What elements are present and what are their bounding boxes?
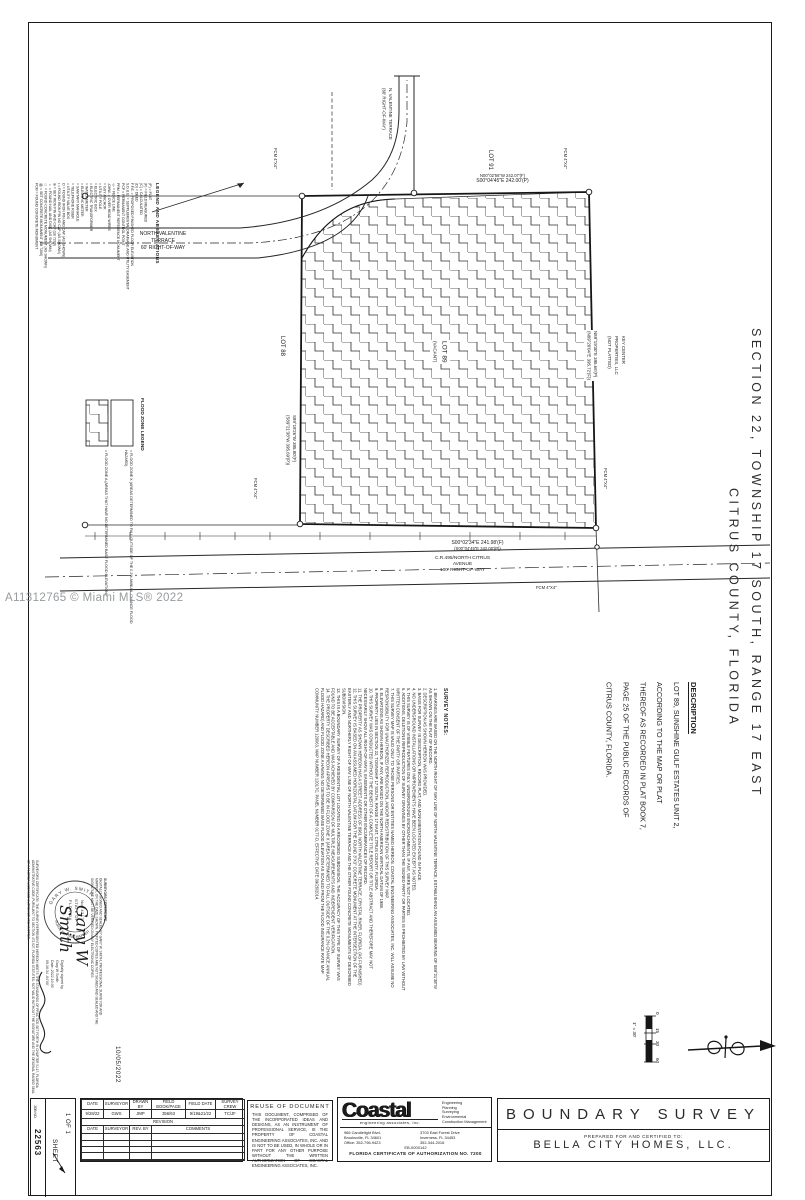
adjacent-owner-label: KEY CENTERPROPERTIES, LLC(NOT PLATTED) bbox=[606, 336, 627, 375]
reuse-of-document-box: REUSE OF DOCUMENT THIS DOCUMENT, COMPRIS… bbox=[247, 1100, 333, 1161]
list-item: = ELECTRIC BOX bbox=[93, 183, 98, 493]
certificate-heading: SURVEYORS CERTIFICATE bbox=[103, 878, 107, 1028]
cell-date: 9/28/22 bbox=[82, 1110, 104, 1119]
bearing-text: S00°04'45"E 242.00'(P) bbox=[415, 178, 590, 184]
list-item: = SANITARY MANHOLE bbox=[75, 183, 80, 493]
survey-info-table: DATE SURVEYOR DRAWN BY FIELD BOOK/PAGE F… bbox=[80, 1098, 243, 1162]
list-item: Digitally signed by bbox=[59, 960, 64, 989]
revision-header: REVISION bbox=[82, 1119, 245, 1126]
list-item: = UTILITY POLE bbox=[97, 183, 102, 493]
signature-line: Smith bbox=[56, 905, 73, 966]
scale-bar bbox=[644, 1016, 656, 1062]
sheet-arrow-icon bbox=[49, 1151, 73, 1181]
col-header-surveyor: SURVEYOR bbox=[104, 1100, 130, 1110]
list-item: ACCORDING TO THE MAP OR PLAT bbox=[650, 682, 667, 950]
section-township-title: SECTION 22, TOWNSHIP 17 SOUTH, RANGE 17 … bbox=[722, 328, 767, 888]
list-item: • = FOUND IRON PIN NO CAP (AS SHOWN) bbox=[57, 183, 62, 493]
reuse-body: THIS DOCUMENT, COMPRISED OF THE INCORPOR… bbox=[248, 1112, 332, 1168]
scale-tick-15: 15 bbox=[655, 1028, 660, 1033]
boundary-survey-box: BOUNDARY SURVEY PREPARED FOR AND CERTIFI… bbox=[497, 1098, 770, 1162]
list-item: 8. ELEVATIONS AS SHOWN HEREON, IF ANY, A… bbox=[379, 688, 384, 994]
cell-field-book: 356/63 bbox=[152, 1110, 186, 1119]
list-item: ⊕ = SET IRON PIN AND CAP (LB 7200) bbox=[52, 183, 57, 493]
list-item: □ = FOUND CONCRETE MONUMENT (AS SHOWN) bbox=[43, 183, 48, 493]
col-header-survey-crew: SURVEY CREW bbox=[216, 1100, 245, 1110]
list-item: S.D.U.E. = SUPPLEMENTAL DRAINAGE AND UTI… bbox=[125, 183, 130, 493]
corner-label-nw: FCM 4"X4" bbox=[272, 148, 277, 169]
list-item: 10. THIS SURVEY WAS CONDUCTED WITHOUT TH… bbox=[363, 688, 374, 994]
road-label-line: 100' RIGHT-OF-WAY bbox=[385, 568, 540, 574]
list-item: KEY CENTER bbox=[620, 336, 627, 375]
surveyor-signature: Gary W Smith bbox=[56, 905, 90, 966]
list-item: (P) = PLAT bbox=[147, 183, 152, 493]
lot-89-status: (VACANT) bbox=[431, 341, 438, 363]
boundary-survey-title: BOUNDARY SURVEY bbox=[506, 1106, 761, 1123]
bearing-east-line: N89°19'30"E 395.66'(P) (N89°20'04"E 395.… bbox=[584, 330, 599, 381]
list-item: 14. THE PROPERTY DESCRIBED HEREON APPEAR… bbox=[314, 688, 330, 994]
rev-row-cell bbox=[104, 1159, 130, 1160]
survey-sheet: GARY W. SMITH SURVEYOR AND MAPPER bbox=[0, 0, 805, 1200]
reuse-title: REUSE OF DOCUMENT bbox=[248, 1104, 332, 1110]
north-arrow-icon bbox=[688, 1035, 776, 1058]
legend-title: LEGEND AND ABBREVIATIONS bbox=[154, 183, 160, 493]
list-item: 9. PROPERTY LIES IN SECTION 22, TOWNSHIP… bbox=[373, 688, 378, 994]
list-item: 7. THIS SURVEY MAP IS VALID ONLY TO THOS… bbox=[384, 688, 395, 994]
list-item: = ELECTRIC TRANSFORMER bbox=[88, 183, 93, 493]
cell-field-date: 9/19&21/22 bbox=[186, 1110, 216, 1119]
coastal-logo: Coastal bbox=[342, 1100, 438, 1121]
mls-watermark: A11312765 © Miami MLS® 2022 bbox=[5, 592, 183, 604]
county-line: CITRUS COUNTY, FLORIDA bbox=[722, 328, 745, 888]
survey-notes-list: 1. BEARINGS ARE BASED ON THE NORTH RIGHT… bbox=[314, 688, 438, 994]
sheet-number-box: JOB NO. 22563 1 OF 1 SHEET bbox=[30, 1098, 76, 1196]
list-item: 1. BEARINGS ARE BASED ON THE NORTH RIGHT… bbox=[427, 688, 438, 994]
bearing-north-line: N00°02'56"W 242.07'(F) S00°04'45"E 242.0… bbox=[415, 173, 590, 185]
bearing-text: S89°18'26"W 395.80'(F) bbox=[291, 415, 298, 465]
road-label-line: (60' RIGHT-OF-WAY) bbox=[380, 88, 387, 140]
section-line: SECTION 22, TOWNSHIP 17 SOUTH, RANGE 17 … bbox=[745, 328, 768, 888]
coastal-address-inverness: 3703 East Forest DriveInverness, FL 3445… bbox=[420, 1130, 490, 1145]
list-item: 11. THE PROPERTY AS SHOWN HEREON HAS A S… bbox=[357, 688, 362, 994]
rev-row-cell bbox=[152, 1159, 245, 1160]
rev-col-rev-by: REV. BY bbox=[130, 1126, 152, 1134]
col-header-field-date: FIELD DATE bbox=[186, 1100, 216, 1110]
sheet-count: 1 OF 1 bbox=[64, 1113, 70, 1134]
list-item: (NOT PLATTED) bbox=[606, 336, 613, 375]
coastal-eb-number: EB-0000142 bbox=[338, 1145, 493, 1150]
bearing-text: (S89°21'38"W 395.69'(P)) bbox=[284, 415, 291, 465]
list-item: -OHW- = OVER HEAD WIRES bbox=[107, 183, 112, 493]
rev-row-cell bbox=[130, 1159, 152, 1160]
cell-survey-crew: TC/JF bbox=[216, 1110, 245, 1119]
description-block: DESCRIPTION LOT 89, SUNSHINE GULF ESTATE… bbox=[588, 682, 702, 950]
survey-notes-block: SURVEY NOTES: 1. BEARINGS ARE BASED ON T… bbox=[218, 688, 448, 994]
signature-line: Gary W bbox=[73, 905, 90, 966]
list-item: CITRUS COUNTY, FLORIDA. bbox=[600, 682, 617, 950]
list-item: LOT 89, SUNSHINE GULF ESTATES UNIT 2, bbox=[667, 682, 684, 950]
list-item: THEREOF AS RECORDED IN PLAT BOOK 7, bbox=[633, 682, 650, 950]
rev-col-comments: COMMENTS bbox=[152, 1126, 245, 1134]
corner-label-ne: FCM 4"X4" bbox=[562, 148, 567, 169]
digital-signature-note: Digitally signed byGary W SmithDate: 202… bbox=[44, 960, 64, 989]
certificate-body-column: SURVEYORS CERTIFICATE DIGITALLY SIGNED A… bbox=[90, 878, 107, 1028]
survey-notes-title: SURVEY NOTES: bbox=[441, 688, 448, 994]
list-item: ▪ = FOUND NAIL AND DISK (AS SHOWN) bbox=[47, 183, 52, 493]
list-item: 09:16:34 -04'00' bbox=[44, 960, 49, 989]
list-item: 4. NO UNDERGROUND INSTALLATIONS OR IMPRO… bbox=[411, 688, 416, 994]
coastal-logo-wrap: Coastal engineering associates, inc. bbox=[342, 1100, 438, 1125]
certificate-body: DIGITALLY SIGNED AND SEALED BY GARY W. S… bbox=[90, 878, 103, 1025]
bearing-west-line: S89°18'26"W 395.80'(F) (S89°21'38"W 395.… bbox=[284, 415, 297, 465]
lot-89-number: LOT 89 bbox=[438, 341, 448, 363]
certificate-legal-column: SURVEYORS CERTIFICATE: THE SURVEY REPRES… bbox=[22, 860, 39, 1094]
rev-row-cell bbox=[82, 1159, 104, 1160]
list-item: (D) = DEED bbox=[134, 183, 139, 493]
scale-tick-30: 30 bbox=[655, 1041, 660, 1046]
description-title: DESCRIPTION bbox=[684, 682, 702, 950]
list-item: FCM = FOUND CONCRETE MONUMENT bbox=[34, 183, 38, 493]
bearing-south-line: S00°02'34"E 241.98'(F) (S00°04'45"E 242.… bbox=[390, 540, 565, 552]
list-item: ▨ = SET CONCRETE MONUMENT (LB 7200) bbox=[38, 183, 43, 493]
sheet-box-divider bbox=[45, 1099, 46, 1197]
list-item: 3. BASIS FOR SURVEY IS DESCRIPTION, RECO… bbox=[417, 688, 422, 994]
col-header-drawn-by: DRAWN BY bbox=[130, 1100, 152, 1110]
scale-title: 1" = 30' bbox=[632, 1022, 637, 1037]
legend-entries: (P) = PLAT(F) = FIELD MEASURED(C) = CALC… bbox=[34, 183, 152, 493]
list-item: -x- = FENCE LINE bbox=[111, 183, 116, 493]
lot-89-label: LOT 89 (VACANT) bbox=[430, 340, 450, 364]
lot-88-label: LOT 88 bbox=[279, 336, 285, 356]
job-number: 22563 bbox=[33, 1129, 42, 1156]
coastal-services: EngineeringPlanningSurveyingEnvironmenta… bbox=[442, 1101, 492, 1125]
list-item: PAGE 25 OF THE PUBLIC RECORDS OF bbox=[616, 682, 633, 950]
coastal-address-brooksville: 966 Candlelight Blvd.Brooksville, FL 346… bbox=[344, 1130, 414, 1145]
list-item: 6. ADDITIONS, DELETIONS REPRODUCTION OF … bbox=[395, 688, 406, 994]
list-item: PROPERTIES, LLC bbox=[613, 336, 620, 375]
cell-drawn-by: JMP bbox=[130, 1110, 152, 1119]
list-item: Date: 2022.10.05 bbox=[49, 960, 54, 989]
job-number-label: JOB NO. bbox=[33, 1105, 37, 1119]
scale-tick-0: 0 bbox=[655, 1012, 660, 1015]
certificate-date: 10/05/2022 bbox=[114, 1046, 121, 1083]
bearing-text: (N89°20'04"E 395.72'(F)) bbox=[585, 331, 592, 380]
list-item: PRM = PERMANENT REFERENCE MONUMENT bbox=[116, 183, 121, 493]
list-item: = ELECTRIC METER bbox=[79, 183, 84, 493]
coastal-divider bbox=[340, 1127, 491, 1128]
coastal-certificate-line: FLORIDA CERTIFICATE OF AUTHORIZATION NO.… bbox=[338, 1151, 493, 1156]
list-item: Construction Management bbox=[442, 1120, 492, 1125]
rev-col-surveyor: SURVEYOR bbox=[104, 1126, 130, 1134]
description-lines: LOT 89, SUNSHINE GULF ESTATES UNIT 2,ACC… bbox=[600, 682, 685, 950]
flood-legend-title: FLOOD ZONE LEGEND bbox=[139, 398, 144, 451]
lot-91-label: LOT 91 bbox=[487, 150, 493, 170]
survey-info-table-grid: DATE SURVEYOR DRAWN BY FIELD BOOK/PAGE F… bbox=[81, 1099, 245, 1161]
col-header-field-book: FIELD BOOK/PAGE bbox=[152, 1100, 186, 1110]
road-label-line: N. VALENTINE TERRACE bbox=[387, 88, 394, 140]
rev-col-date: DATE bbox=[82, 1126, 104, 1134]
corner-label-sw: FCM 4"X4" bbox=[252, 478, 257, 499]
corner-label-se: FCM 4"X4" bbox=[602, 468, 607, 489]
coastal-company-box: Coastal engineering associates, inc. Eng… bbox=[337, 1097, 492, 1162]
list-item: 13. THIS IS A BOUNDARY SURVEY OF A RESID… bbox=[330, 688, 341, 994]
scale-tick-60: 60 bbox=[655, 1058, 660, 1063]
bearing-text: (S00°04'45"E 242.00'(P)) bbox=[390, 546, 565, 551]
cell-surveyor: GWS bbox=[104, 1110, 130, 1119]
list-item: = UTILITY VALVE BOX bbox=[66, 183, 71, 493]
list-item: O = FOUND IRON PIN AND CAP (AS SHOWN) bbox=[61, 183, 66, 493]
client-name: BELLA CITY HOMES, LLC. bbox=[498, 1139, 769, 1151]
bearing-text: N89°19'30"E 395.66'(P) bbox=[592, 331, 599, 380]
list-item: = GUY ANCHOR bbox=[102, 183, 107, 493]
list-item: 12. THIS SURVEY IS BASED ON AN ASSUMED H… bbox=[341, 688, 357, 994]
col-header-date: DATE bbox=[82, 1100, 104, 1110]
list-item: 5. THIS SURVEY IS OF VISIBLE FEATURES ON… bbox=[406, 688, 411, 994]
list-item: PCP = PERMANENT CONTROL POINT bbox=[120, 183, 125, 493]
corner-label-road: FCM 4"X4" bbox=[536, 586, 557, 591]
list-item: 2. DESCRIPTION AS SHOWN HEREON WAS PROVI… bbox=[422, 688, 427, 994]
list-item: F.F.E. = PROPOSED FINISHED FLOOR ELEVATI… bbox=[129, 183, 134, 493]
list-item: = TELEPHONE RISER bbox=[70, 183, 75, 493]
road-label-citrus: C.R.495/NORTH CITRUS AVENUE 100' RIGHT-O… bbox=[385, 556, 540, 575]
road-label-valentine-vertical: N. VALENTINE TERRACE (60' RIGHT-OF-WAY) bbox=[380, 88, 393, 140]
